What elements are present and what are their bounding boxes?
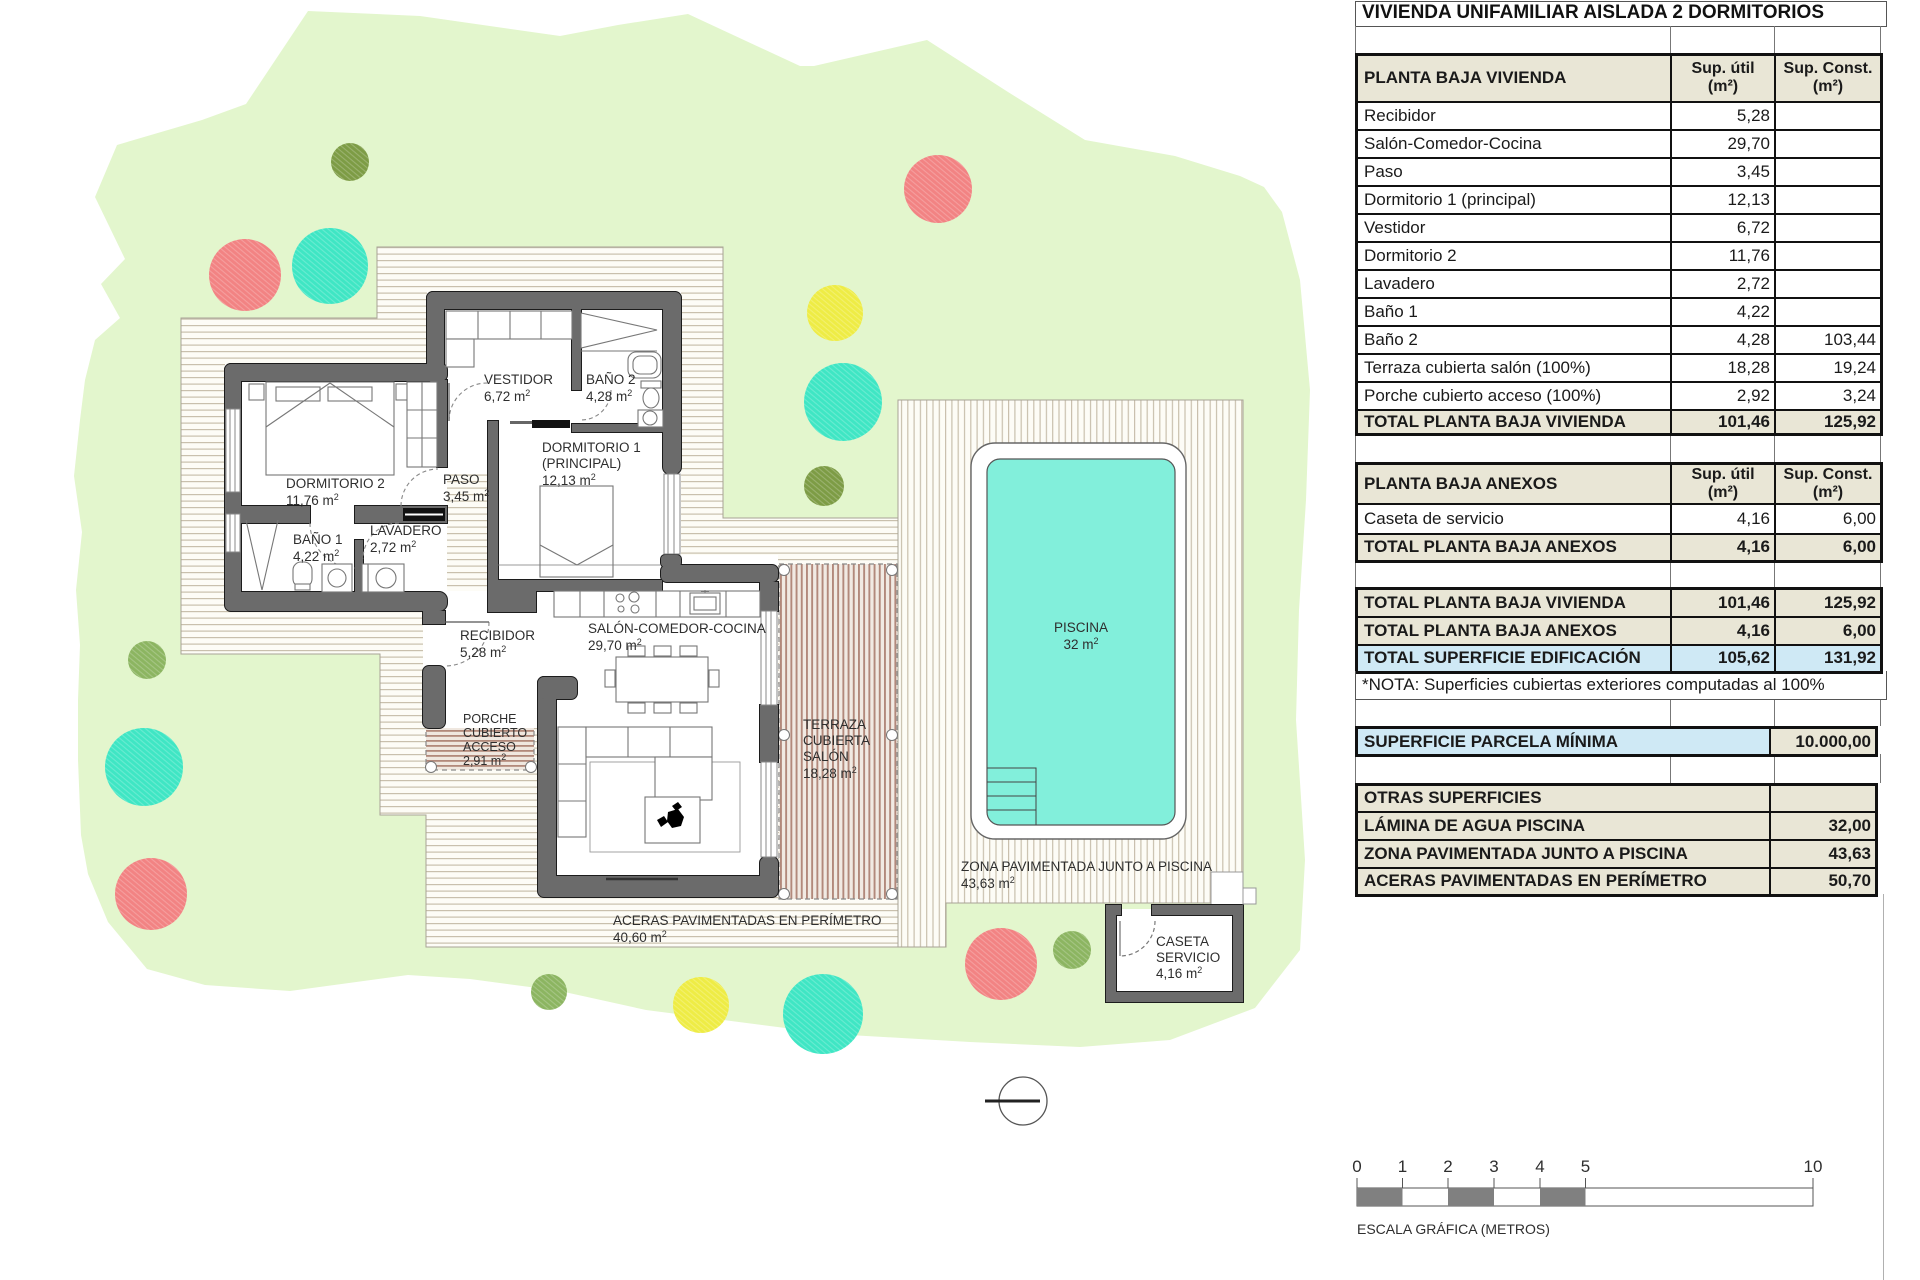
svg-text:SALÓN-COMEDOR-COCINA: SALÓN-COMEDOR-COCINA (588, 621, 766, 636)
svg-text:5: 5 (1581, 1157, 1590, 1176)
svg-text:PASO: PASO (443, 472, 480, 487)
svg-text:32 m2: 32 m2 (1063, 636, 1098, 652)
svg-text:PISCINA: PISCINA (1054, 620, 1108, 635)
svg-text:CUBIERTA: CUBIERTA (803, 733, 870, 748)
svg-text:4: 4 (1535, 1157, 1544, 1176)
svg-text:29,70 m2: 29,70 m2 (588, 637, 642, 653)
svg-text:43,63 m2: 43,63 m2 (961, 875, 1015, 891)
svg-text:1: 1 (1398, 1157, 1407, 1176)
svg-text:10: 10 (1804, 1157, 1823, 1176)
svg-text:SALÓN: SALÓN (803, 749, 849, 764)
svg-text:CASETA: CASETA (1156, 934, 1209, 949)
svg-text:3,45 m2: 3,45 m2 (443, 488, 489, 504)
svg-text:18,28 m2: 18,28 m2 (803, 765, 857, 781)
svg-text:BAÑO 1: BAÑO 1 (293, 532, 343, 547)
svg-text:LAVADERO: LAVADERO (370, 523, 442, 538)
svg-text:VESTIDOR: VESTIDOR (484, 372, 553, 387)
svg-text:2,72 m2: 2,72 m2 (370, 539, 416, 555)
svg-text:4,22 m2: 4,22 m2 (293, 548, 339, 564)
svg-text:4,28 m2: 4,28 m2 (586, 388, 632, 404)
svg-text:(PRINCIPAL): (PRINCIPAL) (542, 456, 621, 471)
svg-text:DORMITORIO 2: DORMITORIO 2 (286, 476, 385, 491)
svg-text:6,72 m2: 6,72 m2 (484, 388, 530, 404)
svg-text:ZONA PAVIMENTADA JUNTO A PISCI: ZONA PAVIMENTADA JUNTO A PISCINA (961, 859, 1212, 874)
svg-text:11,76 m2: 11,76 m2 (286, 492, 339, 508)
svg-text:TERRAZA: TERRAZA (803, 717, 866, 732)
svg-text:4,16 m2: 4,16 m2 (1156, 965, 1202, 981)
svg-text:DORMITORIO 1: DORMITORIO 1 (542, 440, 641, 455)
svg-text:2,91 m2: 2,91 m2 (463, 752, 506, 768)
svg-text:5,28 m2: 5,28 m2 (460, 644, 506, 660)
svg-text:0: 0 (1352, 1157, 1361, 1176)
svg-text:BAÑO 2: BAÑO 2 (586, 372, 636, 387)
svg-text:RECIBIDOR: RECIBIDOR (460, 628, 535, 643)
svg-text:CUBIERTO: CUBIERTO (463, 726, 527, 740)
svg-text:PORCHE: PORCHE (463, 712, 516, 726)
svg-text:ESCALA GRÁFICA (METROS): ESCALA GRÁFICA (METROS) (1357, 1221, 1550, 1237)
svg-text:ACCESO: ACCESO (463, 740, 516, 754)
svg-text:ACERAS PAVIMENTADAS EN PERÍMET: ACERAS PAVIMENTADAS EN PERÍMETRO (613, 913, 882, 928)
svg-text:40,60 m2: 40,60 m2 (613, 929, 667, 945)
svg-text:3: 3 (1489, 1157, 1498, 1176)
svg-text:SERVICIO: SERVICIO (1156, 950, 1220, 965)
svg-text:12,13 m2: 12,13 m2 (542, 472, 596, 488)
svg-text:2: 2 (1443, 1157, 1452, 1176)
